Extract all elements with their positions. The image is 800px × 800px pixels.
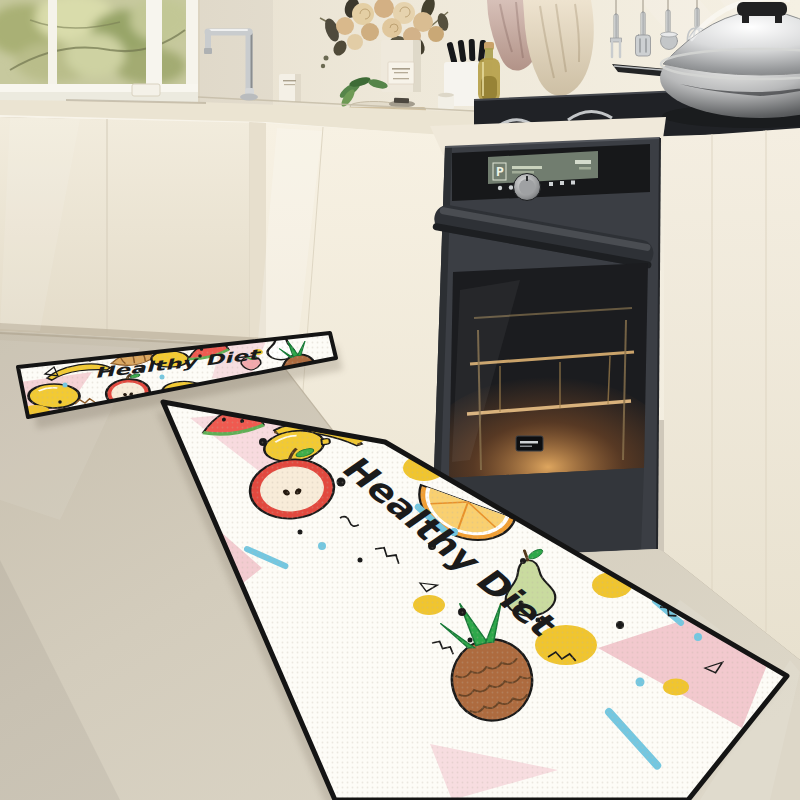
small-cup: [438, 93, 454, 109]
soap-tray: [132, 84, 160, 96]
left-cabinets: [0, 117, 266, 345]
oven-display-mode: P: [496, 164, 504, 179]
canister: [279, 74, 301, 102]
kitchen-scene: P: [0, 0, 800, 800]
window: [0, 0, 198, 104]
wok-lid-handle: [737, 2, 787, 16]
window-mullion: [48, 0, 57, 86]
oven-touch-controls: [498, 186, 502, 190]
